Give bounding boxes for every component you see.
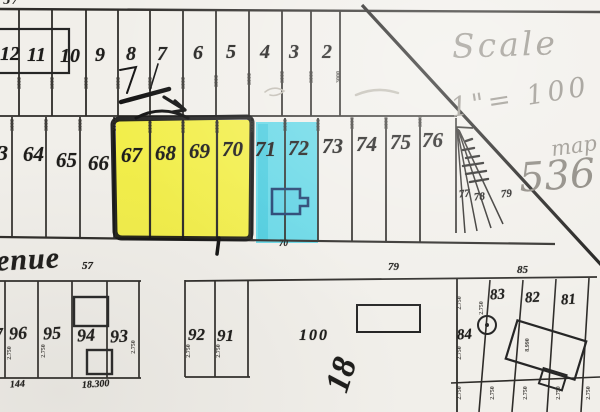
map-number: 536 <box>518 153 597 198</box>
dimension-text: 2.750 <box>131 335 137 359</box>
lot-label-71: 71 <box>255 139 276 160</box>
dimension-text: 3000 <box>50 71 56 95</box>
dimension-text: 3000 <box>148 71 154 95</box>
avenue-street-label: enue <box>0 243 61 276</box>
lot-label-66: 66 <box>88 153 109 174</box>
lot-label-68: 68 <box>155 143 176 164</box>
dimension-text: 2.750 <box>186 339 192 363</box>
lot-label-6: 6 <box>193 43 203 63</box>
lot-label-3: 3 <box>289 42 299 62</box>
lot-label-5: 5 <box>226 42 236 62</box>
dimension-text: 2.750 <box>216 339 222 363</box>
lot-label-81: 81 <box>560 292 576 308</box>
lot-label-79: 79 <box>500 188 512 200</box>
dimension-text: 3000 <box>247 67 253 91</box>
lot-label-2: 2 <box>322 42 332 62</box>
dimension-text: 3000 <box>214 69 220 93</box>
dimension-text: 2.750 <box>457 341 463 365</box>
lot-label-93: 93 <box>110 327 129 346</box>
dimension-text: 2.750 <box>457 291 463 315</box>
lot-label-70: 70 <box>222 139 243 160</box>
dimension-text: 2.750 <box>586 381 592 405</box>
below-blue-label: 70 <box>279 239 288 248</box>
dimension-text: 8.990 <box>525 333 531 357</box>
dimension-text: 2.750 <box>41 339 47 363</box>
dimension-text: 2.750 <box>523 381 529 405</box>
lot-label-72: 72 <box>288 138 309 159</box>
lot-label-73: 73 <box>322 136 343 157</box>
lot-label-74: 74 <box>356 134 377 155</box>
dimension-text: 3000 <box>280 65 286 89</box>
lot-label-64: 64 <box>23 144 44 165</box>
dimension-text: 2.750 <box>556 381 562 405</box>
lot-label-69: 69 <box>189 141 210 162</box>
lot-label-94: 94 <box>77 326 96 345</box>
lot-label-9: 9 <box>95 45 105 65</box>
dimension-text: 3000 <box>10 113 16 137</box>
dimension-text: 3000 <box>84 71 90 95</box>
dimension-text: 2.750 <box>490 381 496 405</box>
dimension-text: 3000 <box>215 115 221 139</box>
hand-scribble <box>120 67 136 93</box>
lot-label-100: 100 <box>299 328 329 344</box>
dimension-text: 3000 <box>116 71 122 95</box>
dimension-text: 3000 <box>181 115 187 139</box>
lot-label-96: 96 <box>9 324 28 343</box>
note-144: 144 <box>10 379 26 390</box>
well-circle-dot <box>485 323 489 327</box>
dimension-text: 3000 <box>418 109 424 133</box>
avenue-number-57: 57 <box>82 261 93 272</box>
building-lot94-lower <box>87 350 112 374</box>
dimension-text: 3000 <box>181 71 187 95</box>
hand-arrow <box>164 97 185 112</box>
lot-label-11: 11 <box>27 45 46 65</box>
lot-label-4: 4 <box>260 42 270 62</box>
lot-label-76: 76 <box>422 130 443 151</box>
lot-label-77: 77 <box>458 188 470 200</box>
dimension-text: 3000 <box>112 113 118 137</box>
lot-label-10: 10 <box>60 46 80 66</box>
lot-label-83: 83 <box>489 287 505 303</box>
lot-label-82: 82 <box>524 290 540 306</box>
dimension-text: 3000 <box>336 65 342 89</box>
building-lot100 <box>357 305 420 332</box>
lot-label-67: 67 <box>121 145 142 166</box>
pencil-smudges <box>265 88 398 95</box>
dimension-text: 3000 <box>44 113 50 137</box>
lot-label-12: 12 <box>0 44 20 64</box>
dimension-text: 2.750 <box>479 296 485 320</box>
dimension-text: 3000 <box>78 113 84 137</box>
lot-label-63: 63 <box>0 143 8 164</box>
lot-label-7: 7 <box>157 44 167 64</box>
dimension-text: 3000 <box>384 111 390 135</box>
dimension-text: 3000 <box>250 115 256 139</box>
marker-85: 85 <box>517 265 528 276</box>
dimension-text: 3000 <box>17 71 23 95</box>
note-18300: 18.300 <box>82 379 110 391</box>
corner-street-label: 57 <box>3 0 18 6</box>
dimension-text: 3000 <box>350 111 356 135</box>
lot-label-75: 75 <box>390 132 411 153</box>
lot-label-65: 65 <box>56 150 77 171</box>
dimension-text: 3000 <box>316 113 322 137</box>
building-lot94-upper <box>74 297 108 326</box>
lot-label-78: 78 <box>473 191 485 203</box>
dimension-text: 3000 <box>148 115 154 139</box>
lot-label-8: 8 <box>126 44 136 64</box>
dimension-text: 3000 <box>309 65 315 89</box>
dimension-text: 3000 <box>283 113 289 137</box>
marker-79: 79 <box>388 262 399 273</box>
scale-word: Scale <box>451 26 558 63</box>
dimension-text: 2.750 <box>7 341 13 365</box>
dimension-text: 2.750 <box>457 381 463 405</box>
plat-map-scan: 57 12 11 10 9 8 7 6 5 4 3 2 63 64 65 66 … <box>0 0 600 412</box>
hand-tick <box>217 238 219 254</box>
